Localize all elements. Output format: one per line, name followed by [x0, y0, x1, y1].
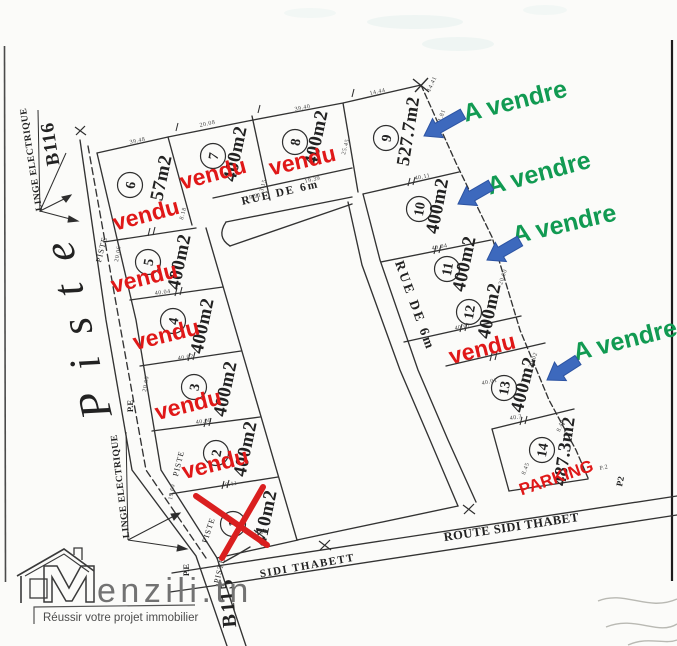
svg-text:14: 14	[535, 442, 552, 458]
svg-text:Réussir votre projet immobilie: Réussir votre projet immobilier	[43, 612, 198, 624]
svg-text:enzili.tn: enzili.tn	[97, 572, 253, 610]
svg-text:P.E: P.E	[125, 400, 135, 413]
